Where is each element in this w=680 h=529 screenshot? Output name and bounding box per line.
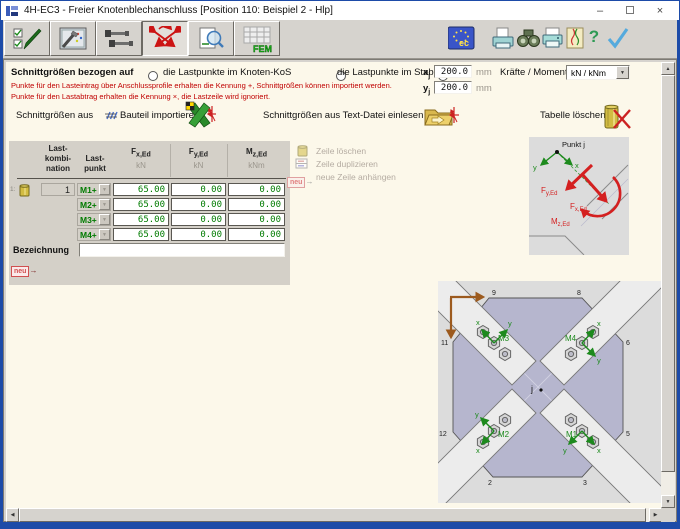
m3-y-label: y: [508, 319, 512, 328]
corner-3: 3: [583, 480, 587, 487]
fx-cell[interactable]: 65.00: [113, 228, 169, 241]
legend-append-icon[interactable]: neu→: [287, 171, 313, 189]
m4-x-label: x: [597, 319, 601, 328]
fy-cell[interactable]: 0.00: [171, 198, 226, 211]
member-hatch-icon: [104, 110, 118, 121]
load-table: Last-kombi-nation Last-punkt Fx,EdkN Fy,…: [9, 141, 290, 285]
punkt-dropdown-icon[interactable]: ▼: [99, 199, 110, 210]
title-bar: 4H-EC3 - Freier Knotenblechanschluss [Po…: [1, 1, 679, 20]
punkt-dropdown-icon[interactable]: ▼: [99, 184, 110, 195]
help-icon: ?: [589, 27, 599, 47]
point-force-diagram: Punkt j y x Fy,Ed Fx,Ed Mz,Ed: [529, 137, 629, 255]
preview-button[interactable]: [188, 21, 234, 56]
header-separator: [170, 144, 171, 177]
delete-row-icon[interactable]: [18, 183, 31, 197]
neu-arrow-icon: →: [29, 266, 37, 275]
gusset-plate-diagram: x y x y y x y x M3 M4 M2 M1: [438, 281, 661, 503]
help-button[interactable]: ?: [587, 27, 601, 47]
punkt-cell[interactable]: M2+▼: [77, 198, 111, 211]
import-textfile-label: Schnittgrößen aus Text-Datei einlesen: [263, 110, 423, 121]
window-title: 4H-EC3 - Freier Knotenblechanschluss [Po…: [24, 5, 333, 16]
legend-delete-label[interactable]: Zeile löschen: [316, 146, 366, 156]
corner-5: 5: [626, 431, 630, 438]
note-line-2: Punkte für den Lastabtrag erhalten die K…: [11, 92, 270, 101]
corner-8: 8: [577, 290, 581, 297]
header-separator: [227, 144, 228, 177]
ec-flag-icon: ec: [448, 26, 475, 50]
center-j-label: j: [530, 384, 533, 394]
printer-icon: [542, 26, 563, 50]
fem-grid-icon: FEM: [241, 25, 273, 53]
header-kombination: Last-kombi-nation: [39, 144, 77, 174]
print-preview-button[interactable]: [492, 26, 514, 50]
protocol-button[interactable]: [4, 21, 50, 56]
radio-knoten-label[interactable]: die Lastpunkte im Knoten-KoS: [163, 67, 291, 78]
corner-2: 2: [488, 480, 492, 487]
mz-cell[interactable]: 0.00: [228, 213, 285, 226]
search-button[interactable]: [517, 26, 540, 50]
close-button[interactable]: ×: [645, 5, 675, 17]
units-select[interactable]: kN / kNm ▼: [566, 65, 630, 80]
import-member-prefix: Schnittgrößen aus: [16, 110, 93, 121]
content-area: Schnittgrößen bezogen auf die Lastpunkte…: [3, 59, 677, 522]
x-coord-input[interactable]: 200.0: [434, 65, 472, 78]
kombination-cell[interactable]: 1: [41, 183, 75, 196]
maximize-icon: [626, 6, 634, 14]
fy-cell[interactable]: 0.00: [171, 183, 226, 196]
legend-duplicate-icon[interactable]: [295, 158, 309, 170]
bezeichnung-input[interactable]: [79, 243, 285, 257]
print-button[interactable]: [542, 26, 563, 50]
note-line-1: Punkte für den Lasteintrag über Anschlus…: [11, 81, 392, 90]
scroll-up-button[interactable]: ▲: [661, 62, 675, 75]
section-label: Schnittgrößen bezogen auf: [11, 67, 133, 78]
fem-button[interactable]: FEM: [234, 21, 280, 56]
vertical-scroll-thumb[interactable]: [661, 75, 675, 472]
notes-page-icon: [565, 26, 586, 50]
member-m4-label: M4: [565, 334, 577, 343]
ec-label: ec: [459, 38, 469, 48]
binoculars-icon: [517, 26, 540, 50]
bolts-icon: [103, 26, 135, 52]
m1-y-label: y: [563, 446, 567, 455]
m4-y-label: y: [597, 356, 601, 365]
corner-9: 9: [492, 290, 496, 297]
annotations-button[interactable]: [565, 26, 586, 50]
y-coord-label: yj: [423, 83, 430, 96]
fasteners-button[interactable]: [96, 21, 142, 56]
checklist-pen-icon: [12, 26, 42, 52]
ec-button[interactable]: ec: [448, 26, 475, 50]
mz-cell[interactable]: 0.00: [228, 228, 285, 241]
scrollbar-corner: [661, 508, 675, 522]
legend-duplicate-label[interactable]: Zeile duplizieren: [316, 159, 378, 169]
header-punkt: Last-punkt: [77, 154, 113, 174]
new-row-button[interactable]: neu→: [11, 260, 37, 278]
header-rule: [17, 178, 286, 179]
m2-x-label: x: [476, 446, 480, 455]
toolbar: FEM ec: [3, 20, 677, 59]
fx-cell[interactable]: 65.00: [113, 183, 169, 196]
print-preview-icon: [492, 26, 514, 50]
row-number: 1:: [10, 186, 15, 193]
system-button[interactable]: [50, 21, 96, 56]
header-mz: Mz,EdkNm: [228, 147, 285, 171]
units-dropdown-icon[interactable]: ▼: [616, 66, 629, 79]
y-axis-label: y: [533, 163, 537, 172]
forces-arrows-icon: [149, 26, 181, 52]
import-textfile-button[interactable]: [423, 102, 459, 128]
form-canvas: Schnittgrößen bezogen auf die Lastpunkte…: [6, 62, 662, 508]
magnifier-document-icon: [196, 26, 226, 52]
punkt-cell[interactable]: M3+▼: [77, 213, 111, 226]
confirm-check-icon: [605, 26, 631, 50]
clear-table-button[interactable]: [602, 102, 632, 132]
corner-11: 11: [441, 340, 448, 347]
member-m1-label: M1: [566, 430, 578, 439]
m1-x-label: x: [597, 446, 601, 455]
m2-y-label: y: [475, 410, 479, 419]
clear-table-label: Tabelle löschen: [540, 110, 606, 121]
mz-cell[interactable]: 0.00: [228, 198, 285, 211]
corner-6: 6: [626, 340, 630, 347]
mz-cell[interactable]: 0.00: [228, 183, 285, 196]
maximize-button[interactable]: [615, 5, 645, 17]
x-unit-label: mm: [476, 67, 492, 78]
member-m2-label: M2: [498, 430, 510, 439]
minimize-button[interactable]: –: [585, 5, 615, 17]
vertical-scrollbar[interactable]: ▲ ▼: [661, 62, 675, 508]
loads-button[interactable]: [142, 21, 188, 56]
punkt-cell[interactable]: M4+▼: [77, 228, 111, 241]
horizontal-scrollbar[interactable]: ◀ ▶: [6, 508, 662, 522]
header-fx: Fx,EdkN: [113, 147, 169, 171]
import-member-button[interactable]: [184, 100, 216, 128]
fx-cell[interactable]: 65.00: [113, 198, 169, 211]
m3-x-label: x: [476, 318, 480, 327]
x-coord-label: xj: [423, 67, 430, 80]
horizontal-scroll-thumb[interactable]: [19, 508, 646, 522]
point-title: Punkt j: [562, 140, 585, 149]
punkt-cell[interactable]: M1+▼: [77, 183, 111, 196]
app-window: 4H-EC3 - Freier Knotenblechanschluss [Po…: [0, 0, 680, 529]
legend-append-label[interactable]: neue Zeile anhängen: [316, 172, 396, 182]
units-value: kN / kNm: [567, 68, 616, 78]
fx-cell[interactable]: 65.00: [113, 213, 169, 226]
fy-cell[interactable]: 0.00: [171, 228, 226, 241]
scroll-down-button[interactable]: ▼: [661, 495, 675, 508]
legend-delete-icon[interactable]: [296, 144, 309, 157]
corner-12: 12: [439, 431, 447, 438]
bezeichnung-label: Bezeichnung: [13, 245, 69, 255]
confirm-button[interactable]: [605, 26, 631, 50]
y-coord-input[interactable]: 200.0: [434, 81, 472, 94]
picture-tool-icon: [58, 26, 88, 52]
y-unit-label: mm: [476, 83, 492, 94]
fem-label: FEM: [253, 44, 272, 53]
punkt-dropdown-icon[interactable]: ▼: [99, 214, 110, 225]
header-fy: Fy,EdkN: [171, 147, 226, 171]
app-icon: [5, 4, 19, 18]
member-m3-label: M3: [498, 334, 510, 343]
x-axis-label: x: [575, 161, 579, 170]
radio-knoten-kos[interactable]: [148, 71, 158, 81]
scroll-left-button[interactable]: ◀: [6, 508, 19, 522]
punkt-dropdown-icon[interactable]: ▼: [99, 229, 110, 240]
fy-cell[interactable]: 0.00: [171, 213, 226, 226]
